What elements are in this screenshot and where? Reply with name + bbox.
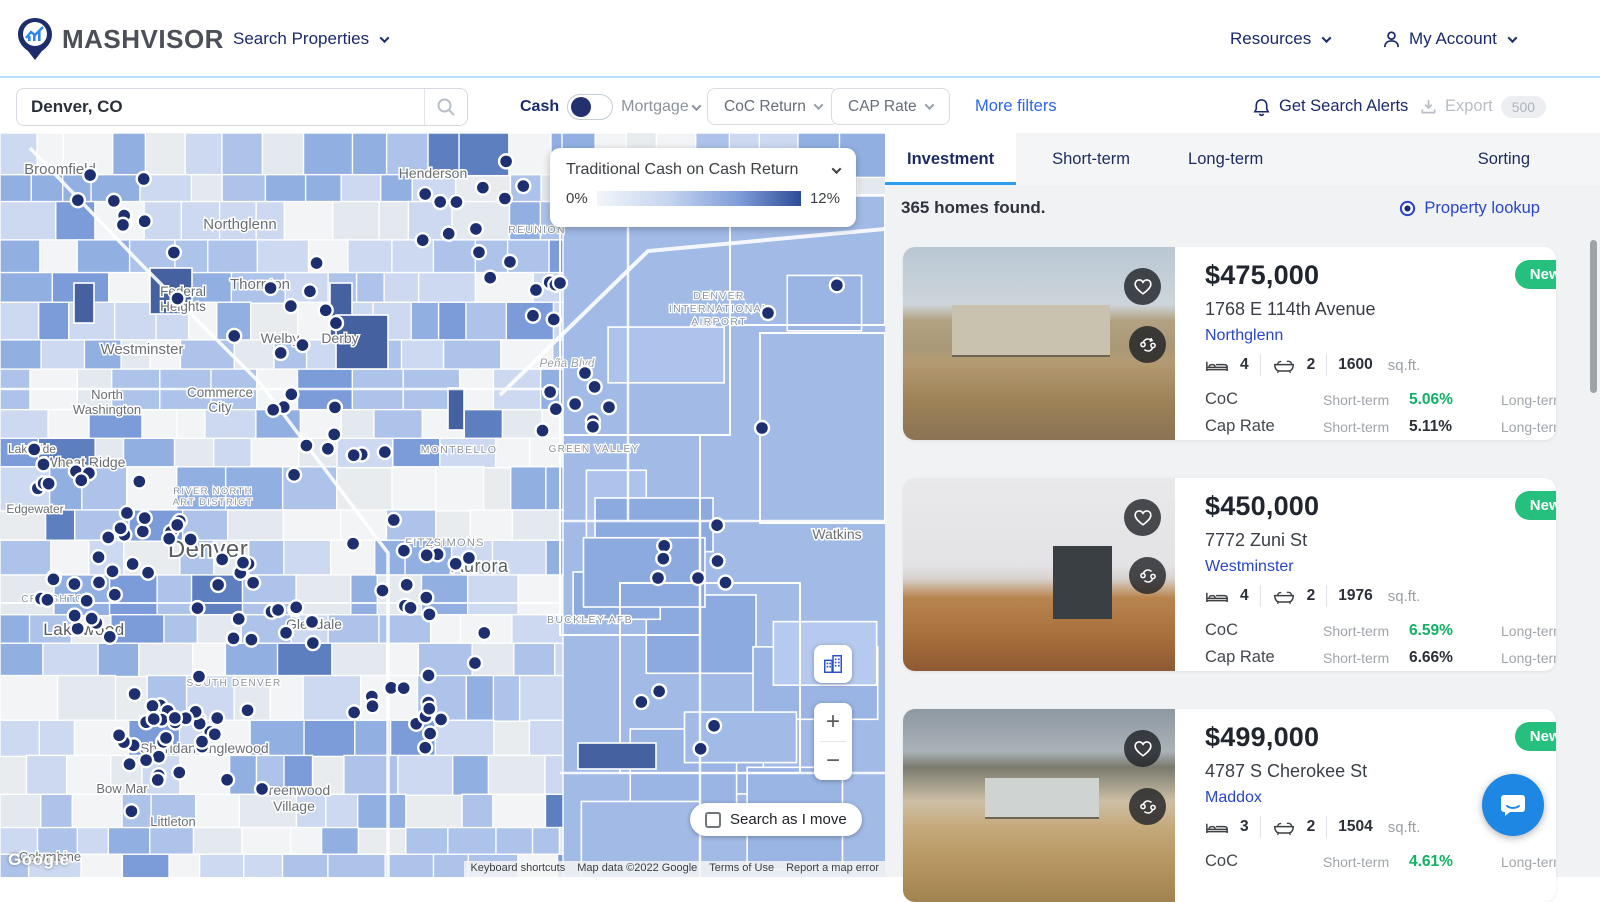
sqft-unit: sq.ft. bbox=[1388, 588, 1421, 605]
bath-icon bbox=[1272, 819, 1296, 836]
short-term-value: 4.61% bbox=[1409, 853, 1501, 871]
cash-mortgage-toggle-group: Cash Mortgage bbox=[520, 88, 700, 126]
long-term-label: Long-term bbox=[1501, 419, 1556, 435]
divider bbox=[1326, 354, 1327, 376]
short-term-label: Short-term bbox=[1323, 854, 1409, 870]
panel-scrollbar[interactable] bbox=[1590, 240, 1597, 393]
listing-facts: 4 2 1976 sq.ft. bbox=[1205, 585, 1556, 607]
long-term-label: Long-term bbox=[1501, 392, 1556, 408]
chevron-down-icon bbox=[924, 100, 934, 110]
mortgage-text: Mortgage bbox=[621, 98, 689, 116]
coc-return-label: CoC Return bbox=[724, 98, 806, 116]
short-term-label: Short-term bbox=[1323, 392, 1409, 408]
get-search-alerts-label: Get Search Alerts bbox=[1279, 97, 1408, 116]
svg-text:Thornton: Thornton bbox=[230, 276, 290, 293]
filter-bar: Cash Mortgage CoC Return CAP Rate More f… bbox=[0, 80, 1600, 133]
nav-resources-label: Resources bbox=[1230, 29, 1311, 49]
svg-text:DENVER: DENVER bbox=[693, 290, 745, 302]
photo-detail bbox=[1053, 546, 1113, 619]
listing-metrics: CoC Short-term 5.06% Long-term 4.94% Cap… bbox=[1205, 386, 1556, 440]
listing-price: $475,000 bbox=[1205, 260, 1556, 291]
svg-text:Watkins: Watkins bbox=[812, 526, 861, 542]
results-tabbar: Investment Short-term Long-term Sorting bbox=[885, 133, 1600, 185]
listing-details: $475,000 New Listing 1768 E 114th Avenue… bbox=[1175, 247, 1556, 440]
svg-text:Derby: Derby bbox=[321, 330, 358, 346]
svg-text:Littleton: Littleton bbox=[150, 814, 196, 829]
compare-icon bbox=[1138, 797, 1158, 817]
favorite-button[interactable] bbox=[1124, 499, 1161, 536]
cap-rate-filter[interactable]: CAP Rate bbox=[831, 88, 950, 125]
sorting-button[interactable]: Sorting bbox=[1478, 133, 1600, 185]
sqft-unit: sq.ft. bbox=[1388, 819, 1421, 836]
short-term-value: 6.59% bbox=[1409, 622, 1501, 640]
svg-text:Edgewater: Edgewater bbox=[6, 502, 63, 516]
compare-button[interactable] bbox=[1129, 788, 1166, 825]
long-term-label: Long-term bbox=[1501, 854, 1556, 870]
svg-text:Henderson: Henderson bbox=[399, 165, 468, 181]
keyboard-shortcuts-link[interactable]: Keyboard shortcuts bbox=[464, 861, 571, 877]
new-listing-badge: New Listing bbox=[1515, 260, 1556, 289]
mortgage-label[interactable]: Mortgage bbox=[621, 98, 700, 116]
bed-icon bbox=[1205, 819, 1229, 836]
property-photo[interactable] bbox=[903, 247, 1175, 440]
export-count-badge: 500 bbox=[1501, 96, 1546, 118]
location-search-input[interactable] bbox=[17, 97, 424, 117]
zoom-out-button[interactable]: − bbox=[814, 742, 852, 780]
svg-text:RIVER NORTH: RIVER NORTH bbox=[173, 486, 253, 497]
baths-count: 2 bbox=[1307, 818, 1316, 836]
listing-card[interactable]: $475,000 New Listing 1768 E 114th Avenue… bbox=[903, 247, 1556, 440]
svg-text:Village: Village bbox=[273, 798, 315, 814]
property-photo[interactable] bbox=[903, 478, 1175, 671]
sqft-value: 1976 bbox=[1338, 587, 1372, 605]
coc-return-filter[interactable]: CoC Return bbox=[707, 88, 839, 125]
photo-detail bbox=[952, 305, 1110, 355]
svg-text:AIRPORT: AIRPORT bbox=[691, 316, 747, 328]
listing-facts: 4 2 1600 sq.ft. bbox=[1205, 354, 1556, 376]
zoom-in-button[interactable]: + bbox=[814, 703, 852, 741]
choropleth-map[interactable]: BroomfieldHendersonREUNIONNorthglennThor… bbox=[0, 133, 885, 877]
cash-mortgage-toggle[interactable] bbox=[567, 94, 613, 120]
svg-text:GREEN VALLEY: GREEN VALLEY bbox=[548, 444, 639, 455]
beds-count: 4 bbox=[1240, 356, 1249, 374]
get-search-alerts-button[interactable]: Get Search Alerts bbox=[1252, 88, 1408, 125]
more-filters-button[interactable]: More filters bbox=[975, 88, 1057, 125]
bell-icon bbox=[1252, 97, 1271, 117]
terms-of-use-link[interactable]: Terms of Use bbox=[703, 861, 780, 877]
location-searchbox bbox=[16, 88, 468, 126]
svg-text:North: North bbox=[91, 387, 123, 402]
compare-icon bbox=[1138, 566, 1158, 586]
svg-text:Commerce: Commerce bbox=[187, 385, 253, 400]
search-as-i-move-checkbox[interactable] bbox=[705, 812, 721, 828]
compare-button[interactable] bbox=[1129, 557, 1166, 594]
nav-my-account[interactable]: My Account bbox=[1382, 0, 1516, 78]
property-lookup-icon bbox=[1399, 200, 1416, 217]
svg-text:MONTBELLO: MONTBELLO bbox=[421, 444, 497, 456]
favorite-button[interactable] bbox=[1124, 730, 1161, 767]
svg-text:ART DISTRICT: ART DISTRICT bbox=[173, 497, 254, 508]
cap-rate-label: CAP Rate bbox=[848, 98, 917, 116]
chat-widget-button[interactable] bbox=[1482, 774, 1544, 836]
beds-count: 3 bbox=[1240, 818, 1249, 836]
svg-text:Welby: Welby bbox=[261, 330, 300, 346]
svg-text:INTERNATIONAL: INTERNATIONAL bbox=[669, 303, 769, 315]
search-as-i-move-toggle[interactable]: Search as I move bbox=[690, 803, 862, 836]
legend-max: 12% bbox=[810, 190, 840, 207]
svg-text:Bow Mar: Bow Mar bbox=[96, 781, 148, 796]
svg-text:Northglenn: Northglenn bbox=[203, 216, 276, 233]
legend-gradient bbox=[597, 191, 801, 206]
property-lookup-toggle[interactable]: Property lookup bbox=[1399, 199, 1540, 218]
listing-address: 1768 E 114th Avenue bbox=[1205, 299, 1556, 320]
metric-label: Cap Rate bbox=[1205, 648, 1323, 667]
beds-count: 4 bbox=[1240, 587, 1249, 605]
sqft-unit: sq.ft. bbox=[1388, 357, 1421, 374]
baths-count: 2 bbox=[1307, 587, 1316, 605]
svg-text:Westminster: Westminster bbox=[100, 341, 183, 358]
compare-button[interactable] bbox=[1129, 326, 1166, 363]
listing-details: $450,000 New Listing 7772 Zuni St Westmi… bbox=[1175, 478, 1556, 671]
cash-label: Cash bbox=[520, 98, 559, 116]
svg-text:BUCKLEY AFB: BUCKLEY AFB bbox=[547, 614, 633, 626]
listing-card[interactable]: $499,000 New Listing 4787 S Cherokee St … bbox=[903, 709, 1556, 902]
bed-icon bbox=[1205, 588, 1229, 605]
listing-address: 7772 Zuni St bbox=[1205, 530, 1556, 551]
heart-icon bbox=[1133, 278, 1153, 296]
map-legend: Traditional Cash on Cash Return 0% 12% bbox=[550, 148, 856, 227]
sqft-value: 1504 bbox=[1338, 818, 1372, 836]
chevron-down-icon bbox=[691, 101, 701, 111]
divider bbox=[1326, 585, 1327, 607]
report-map-error-link[interactable]: Report a map error bbox=[780, 861, 885, 877]
map-data-text: Map data ©2022 Google bbox=[571, 861, 703, 877]
svg-text:Washington: Washington bbox=[73, 402, 141, 417]
export-label: Export bbox=[1445, 97, 1493, 116]
brand-text: MASHVISOR bbox=[62, 24, 224, 55]
long-term-label: Long-term bbox=[1501, 623, 1556, 639]
listing-price: $499,000 bbox=[1205, 722, 1556, 753]
metric-label: CoC bbox=[1205, 621, 1323, 640]
divider bbox=[1260, 816, 1261, 838]
short-term-label: Short-term bbox=[1323, 623, 1409, 639]
svg-text:FITZSIMONS: FITZSIMONS bbox=[405, 537, 485, 549]
metric-label: CoC bbox=[1205, 390, 1323, 409]
tab-investment[interactable]: Investment bbox=[885, 133, 1016, 185]
listing-metrics: CoC Short-term 6.59% Long-term 4.82% Cap… bbox=[1205, 617, 1556, 671]
results-count: 365 homes found. bbox=[901, 198, 1046, 218]
chevron-down-icon bbox=[1507, 33, 1517, 43]
short-term-value: 5.11% bbox=[1409, 418, 1501, 436]
legend-min: 0% bbox=[566, 190, 588, 207]
top-navbar: MASHVISOR Search Properties Resources My… bbox=[0, 0, 1600, 78]
map-canvas[interactable]: BroomfieldHendersonREUNIONNorthglennThor… bbox=[0, 133, 885, 877]
metric-label: Cap Rate bbox=[1205, 417, 1323, 436]
logo-pin-icon bbox=[16, 16, 54, 62]
bath-icon bbox=[1272, 588, 1296, 605]
mashvisor-logo[interactable]: MASHVISOR bbox=[16, 16, 224, 62]
listing-city-link[interactable]: Westminster bbox=[1205, 558, 1556, 576]
map-attribution: Keyboard shortcuts Map data ©2022 Google… bbox=[464, 861, 885, 877]
chevron-down-icon[interactable] bbox=[832, 164, 842, 174]
compare-icon bbox=[1138, 335, 1158, 355]
long-term-label: Long-term bbox=[1501, 650, 1556, 666]
short-term-label: Short-term bbox=[1323, 650, 1409, 666]
svg-text:City: City bbox=[208, 400, 231, 415]
chevron-down-icon bbox=[380, 33, 390, 43]
buildings-layer-button[interactable] bbox=[814, 645, 852, 683]
buildings-icon bbox=[822, 653, 844, 675]
legend-title: Traditional Cash on Cash Return bbox=[566, 161, 798, 179]
listing-metrics: CoC Short-term 4.61% Long-term 2.68% bbox=[1205, 848, 1556, 875]
divider bbox=[1326, 816, 1327, 838]
metric-label: CoC bbox=[1205, 852, 1323, 871]
heart-icon bbox=[1133, 740, 1153, 758]
listing-city-link[interactable]: Northglenn bbox=[1205, 327, 1556, 345]
listing-price: $450,000 bbox=[1205, 491, 1556, 522]
zoom-control: + − bbox=[814, 703, 852, 780]
short-term-value: 5.06% bbox=[1409, 391, 1501, 409]
property-photo[interactable] bbox=[903, 709, 1175, 902]
listing-card[interactable]: $450,000 New Listing 7772 Zuni St Westmi… bbox=[903, 478, 1556, 671]
bed-icon bbox=[1205, 357, 1229, 374]
search-icon[interactable] bbox=[425, 97, 467, 117]
results-panel: Investment Short-term Long-term Sorting … bbox=[885, 133, 1600, 877]
chevron-down-icon bbox=[1322, 33, 1332, 43]
chevron-down-icon bbox=[813, 100, 823, 110]
favorite-button[interactable] bbox=[1124, 268, 1161, 305]
short-term-label: Short-term bbox=[1323, 419, 1409, 435]
nav-my-account-label: My Account bbox=[1409, 29, 1497, 49]
download-icon bbox=[1420, 98, 1437, 115]
new-listing-badge: New Listing bbox=[1515, 491, 1556, 520]
results-summary-row: 365 homes found. Property lookup bbox=[885, 185, 1600, 231]
divider bbox=[1260, 354, 1261, 376]
heart-icon bbox=[1133, 509, 1153, 527]
bath-icon bbox=[1272, 357, 1296, 374]
toggle-knob bbox=[571, 97, 591, 117]
export-button[interactable]: Export 500 bbox=[1420, 88, 1546, 125]
nav-resources[interactable]: Resources bbox=[1230, 0, 1330, 78]
divider bbox=[1260, 585, 1261, 607]
photo-detail bbox=[985, 778, 1099, 817]
new-listing-badge: New Listing bbox=[1515, 722, 1556, 751]
tab-short-term[interactable]: Short-term bbox=[1030, 133, 1152, 185]
google-logo: Google bbox=[8, 850, 70, 870]
chat-icon bbox=[1498, 790, 1528, 820]
short-term-value: 6.66% bbox=[1409, 649, 1501, 667]
nav-search-properties-label: Search Properties bbox=[233, 29, 369, 49]
user-icon bbox=[1382, 30, 1401, 49]
search-as-i-move-label: Search as I move bbox=[730, 811, 847, 828]
property-lookup-label: Property lookup bbox=[1424, 199, 1540, 218]
sqft-value: 1600 bbox=[1338, 356, 1372, 374]
baths-count: 2 bbox=[1307, 356, 1316, 374]
tab-long-term[interactable]: Long-term bbox=[1166, 133, 1285, 185]
nav-search-properties[interactable]: Search Properties bbox=[233, 0, 388, 78]
